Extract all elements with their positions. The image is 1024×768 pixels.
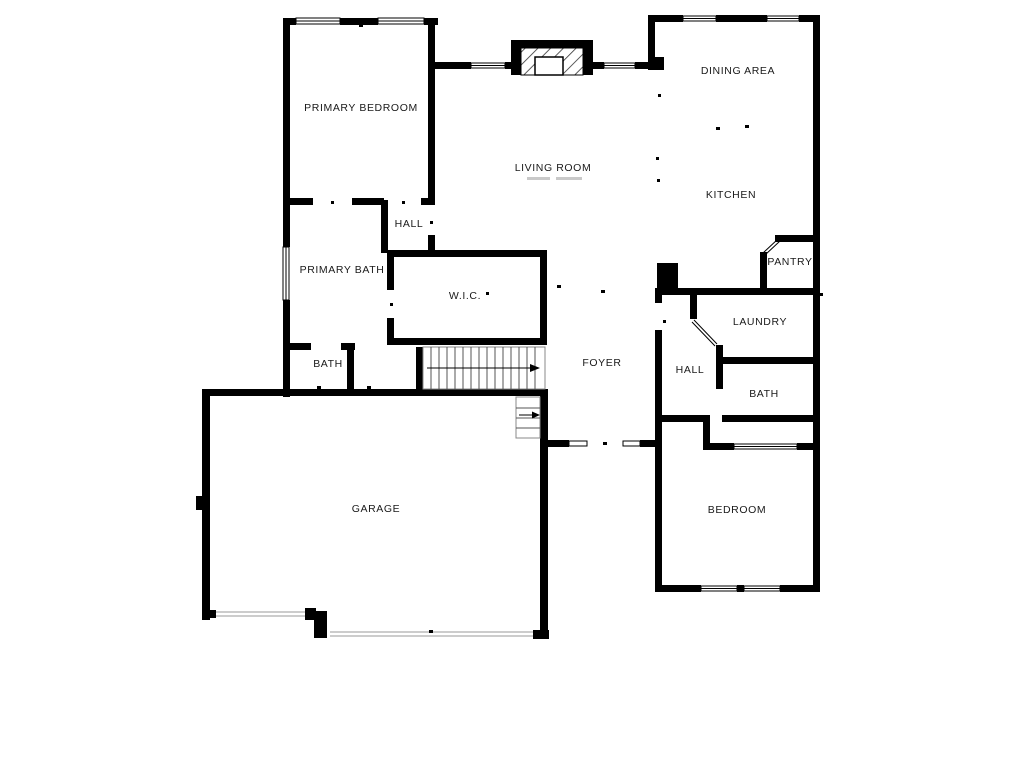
room-label-hall-upper: HALL bbox=[395, 218, 424, 230]
room-label-dining-area: DINING AREA bbox=[701, 65, 775, 77]
room-label-kitchen: KITCHEN bbox=[706, 189, 756, 201]
room-label-laundry: LAUNDRY bbox=[733, 316, 787, 328]
room-label-primary-bath: PRIMARY BATH bbox=[300, 264, 385, 276]
room-label-wic: W.I.C. bbox=[449, 290, 481, 302]
floor-plan-drawing: PRIMARY BEDROOM LIVING ROOM DINING AREA … bbox=[0, 0, 1024, 768]
floor-plan: PRIMARY BEDROOM LIVING ROOM DINING AREA … bbox=[0, 0, 1024, 768]
room-label-bath-left: BATH bbox=[313, 358, 343, 370]
room-label-bedroom: BEDROOM bbox=[708, 504, 766, 516]
room-label-garage: GARAGE bbox=[352, 503, 401, 515]
room-label-primary-bedroom: PRIMARY BEDROOM bbox=[304, 102, 418, 114]
room-label-living-room: LIVING ROOM bbox=[515, 162, 592, 174]
garage-doors bbox=[216, 612, 533, 636]
living-room-dims-faint bbox=[527, 177, 582, 180]
fireplace-icon bbox=[511, 40, 593, 75]
walls bbox=[196, 15, 820, 639]
staircase bbox=[423, 347, 545, 389]
room-label-hall-lower: HALL bbox=[676, 364, 705, 376]
room-label-bath-right: BATH bbox=[749, 388, 779, 400]
garage-landing bbox=[516, 397, 540, 438]
room-label-foyer: FOYER bbox=[582, 357, 621, 369]
room-label-pantry: PANTRY bbox=[767, 256, 812, 268]
